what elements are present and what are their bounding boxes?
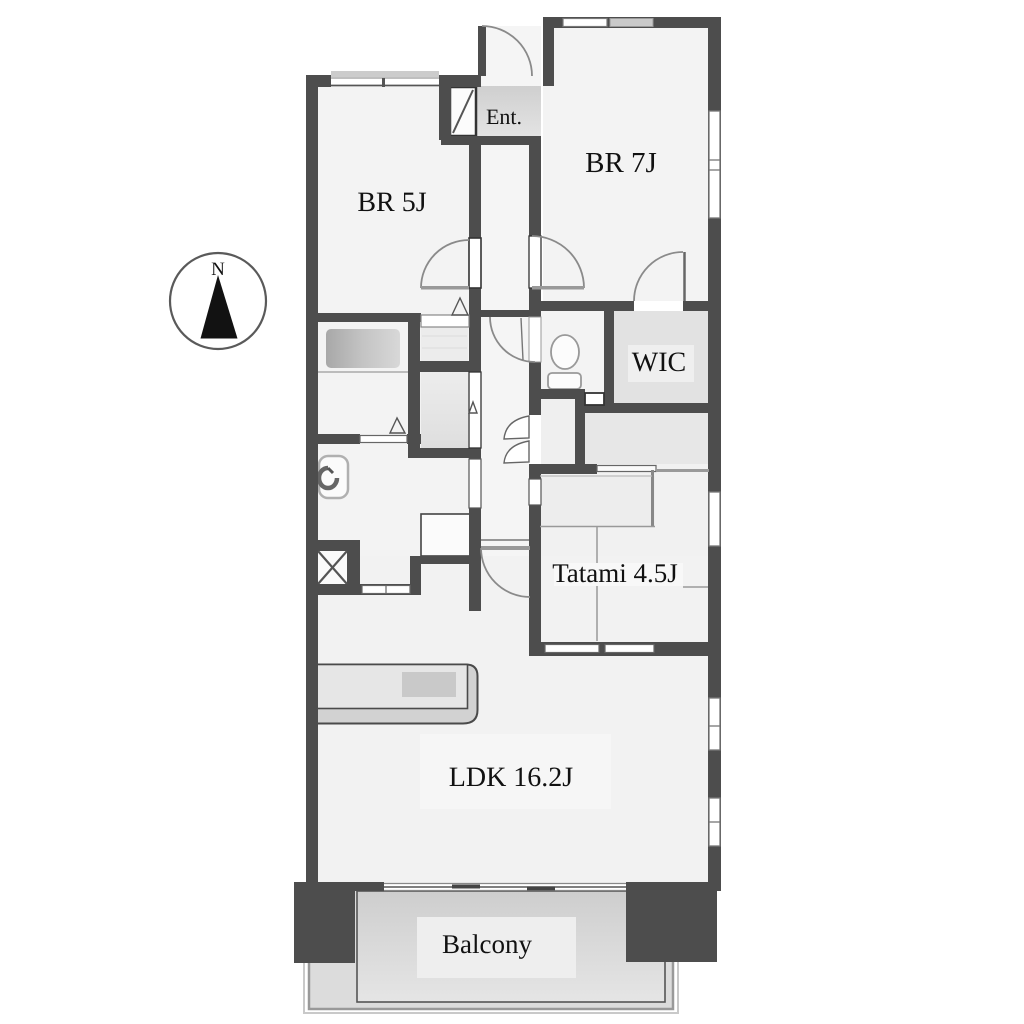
svg-text:BR 7J: BR 7J [585, 147, 657, 179]
svg-text:Balcony: Balcony [442, 929, 532, 959]
svg-text:WIC: WIC [632, 347, 686, 378]
svg-text:Ent.: Ent. [486, 104, 522, 129]
svg-text:Tatami 4.5J: Tatami 4.5J [552, 558, 678, 588]
svg-text:BR 5J: BR 5J [357, 187, 426, 218]
svg-text:LDK 16.2J: LDK 16.2J [449, 762, 574, 793]
